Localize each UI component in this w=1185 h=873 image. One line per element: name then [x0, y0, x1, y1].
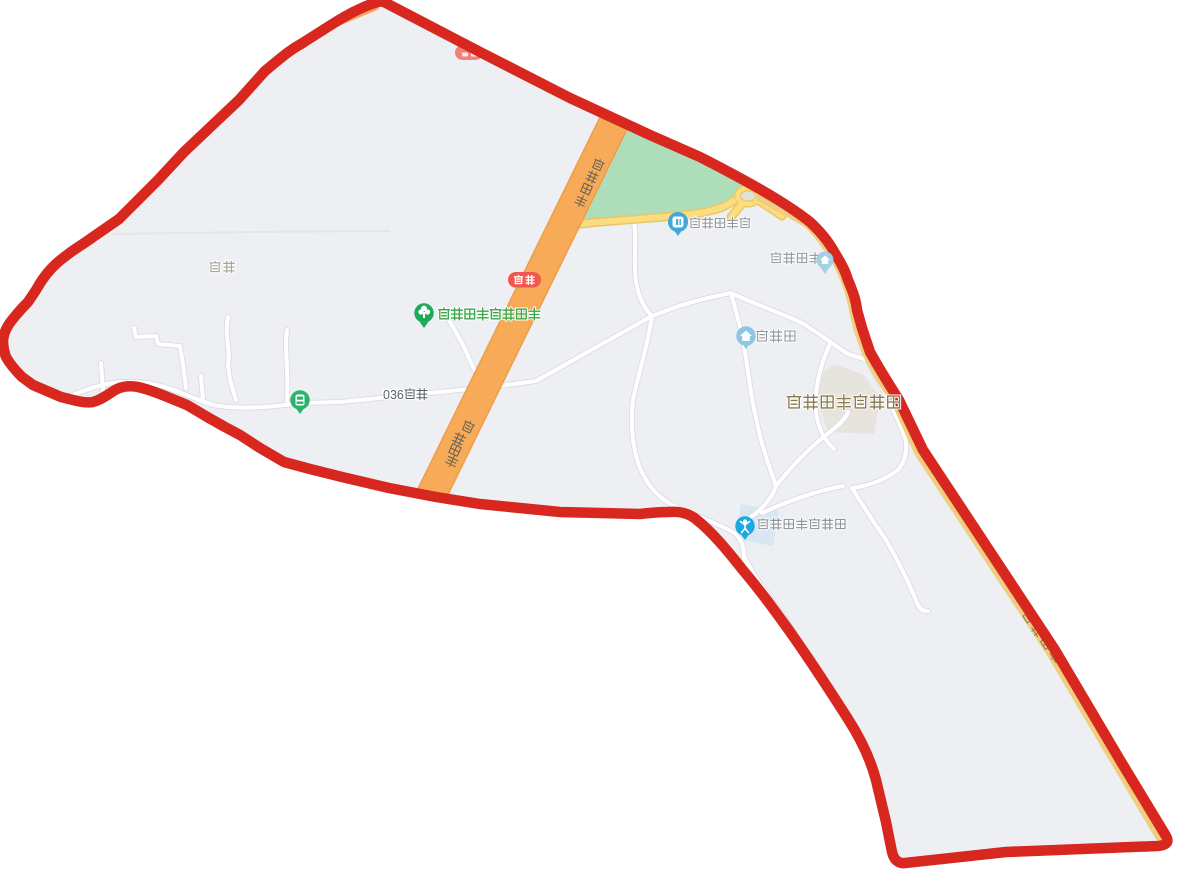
- svg-text:036: 036: [383, 388, 404, 402]
